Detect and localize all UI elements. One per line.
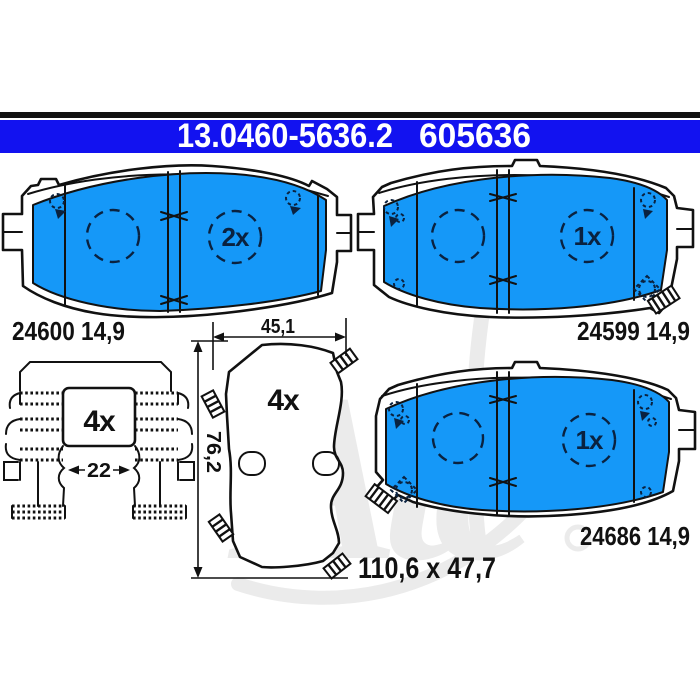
- dimension-width-label: 45,1: [261, 316, 295, 338]
- dimension-height-label: 76,2: [202, 431, 224, 473]
- brake-pad-set-diagram: Ate 13.0460-5636.2 605636 2x 24600 14,9: [0, 0, 700, 700]
- pad-a-quantity-label: 2x: [222, 222, 250, 252]
- pad-b-quantity-label: 1x: [574, 221, 602, 251]
- diagram-canvas: Ate 13.0460-5636.2 605636 2x 24600 14,9: [0, 0, 700, 700]
- backplate-quantity-label: 4x: [267, 384, 300, 417]
- dimension-clip-gap-label: 22: [87, 460, 111, 482]
- fitting-kit-quantity-label: 4x: [83, 405, 116, 438]
- part-number-top-left: 24600 14,9: [12, 316, 125, 346]
- header-reference-number: 605636: [419, 117, 531, 155]
- part-number-top-right: 24599 14,9: [577, 316, 690, 346]
- pad-b-friction-surface: [384, 175, 667, 310]
- pad-drawing-top-right: 1x: [358, 160, 693, 318]
- pad-drawing-bottom-right: 1x: [366, 362, 695, 516]
- backplate-shape: [226, 344, 343, 567]
- pad-drawing-top-left: 2x: [3, 165, 351, 317]
- overall-size-label: 110,6 x 47,7: [358, 552, 496, 585]
- pad-c-friction-surface: [386, 377, 669, 511]
- header-part-number: 13.0460-5636.2: [177, 117, 393, 155]
- pad-c-quantity-label: 1x: [576, 425, 604, 455]
- part-number-bottom-right: 24686 14,9: [580, 521, 690, 551]
